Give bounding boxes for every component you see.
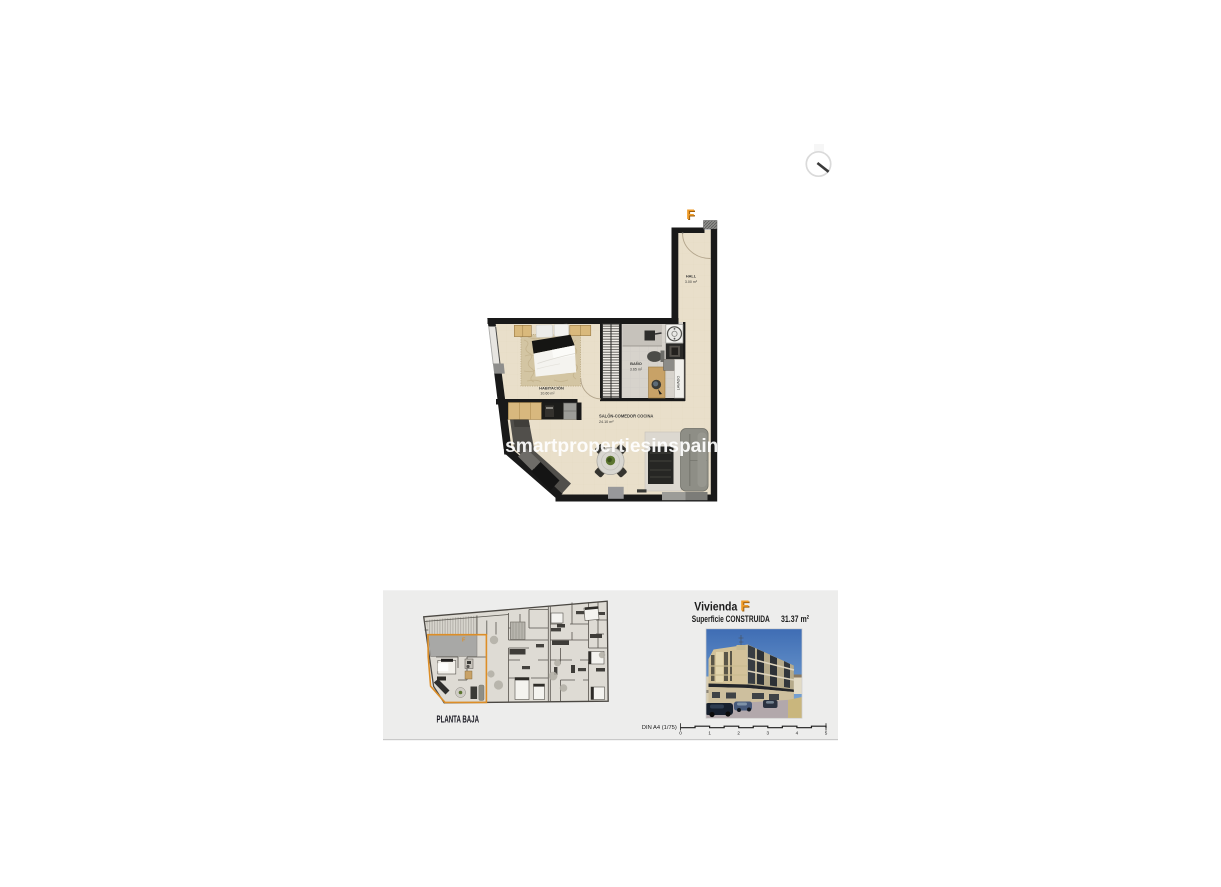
svg-text:PLANTA BAJA: PLANTA BAJA	[437, 714, 480, 725]
svg-text:DIN A4 (1/75): DIN A4 (1/75)	[642, 725, 677, 731]
svg-text:0: 0	[679, 731, 682, 736]
svg-text:10.60 m²: 10.60 m²	[540, 392, 555, 396]
svg-text:LAVADO: LAVADO	[677, 376, 681, 391]
svg-text:HABITACIÓN: HABITACIÓN	[539, 386, 564, 391]
svg-text:2: 2	[737, 731, 740, 736]
svg-text:31.37 m²: 31.37 m²	[781, 614, 809, 625]
svg-text:SALÓN-COMEDOR COCINA: SALÓN-COMEDOR COCINA	[599, 414, 653, 419]
svg-text:3.00 m²: 3.00 m²	[685, 280, 698, 284]
svg-text:F: F	[740, 599, 749, 615]
svg-text:3: 3	[767, 731, 770, 736]
svg-text:BAÑO: BAÑO	[630, 361, 642, 366]
svg-text:Superficie CONSTRUIDA: Superficie CONSTRUIDA	[692, 614, 770, 625]
svg-text:3.65 m²: 3.65 m²	[630, 368, 643, 372]
svg-text:5: 5	[825, 731, 828, 736]
svg-text:1: 1	[708, 731, 711, 736]
svg-text:Vivienda: Vivienda	[694, 599, 737, 613]
svg-text:HALL: HALL	[686, 274, 697, 279]
svg-text:4: 4	[796, 731, 799, 736]
svg-text:24.10 m²: 24.10 m²	[599, 420, 614, 424]
svg-text:F: F	[686, 207, 694, 222]
svg-text:w.smartpropertiesinspain.com: w.smartpropertiesinspain.com	[485, 436, 725, 457]
